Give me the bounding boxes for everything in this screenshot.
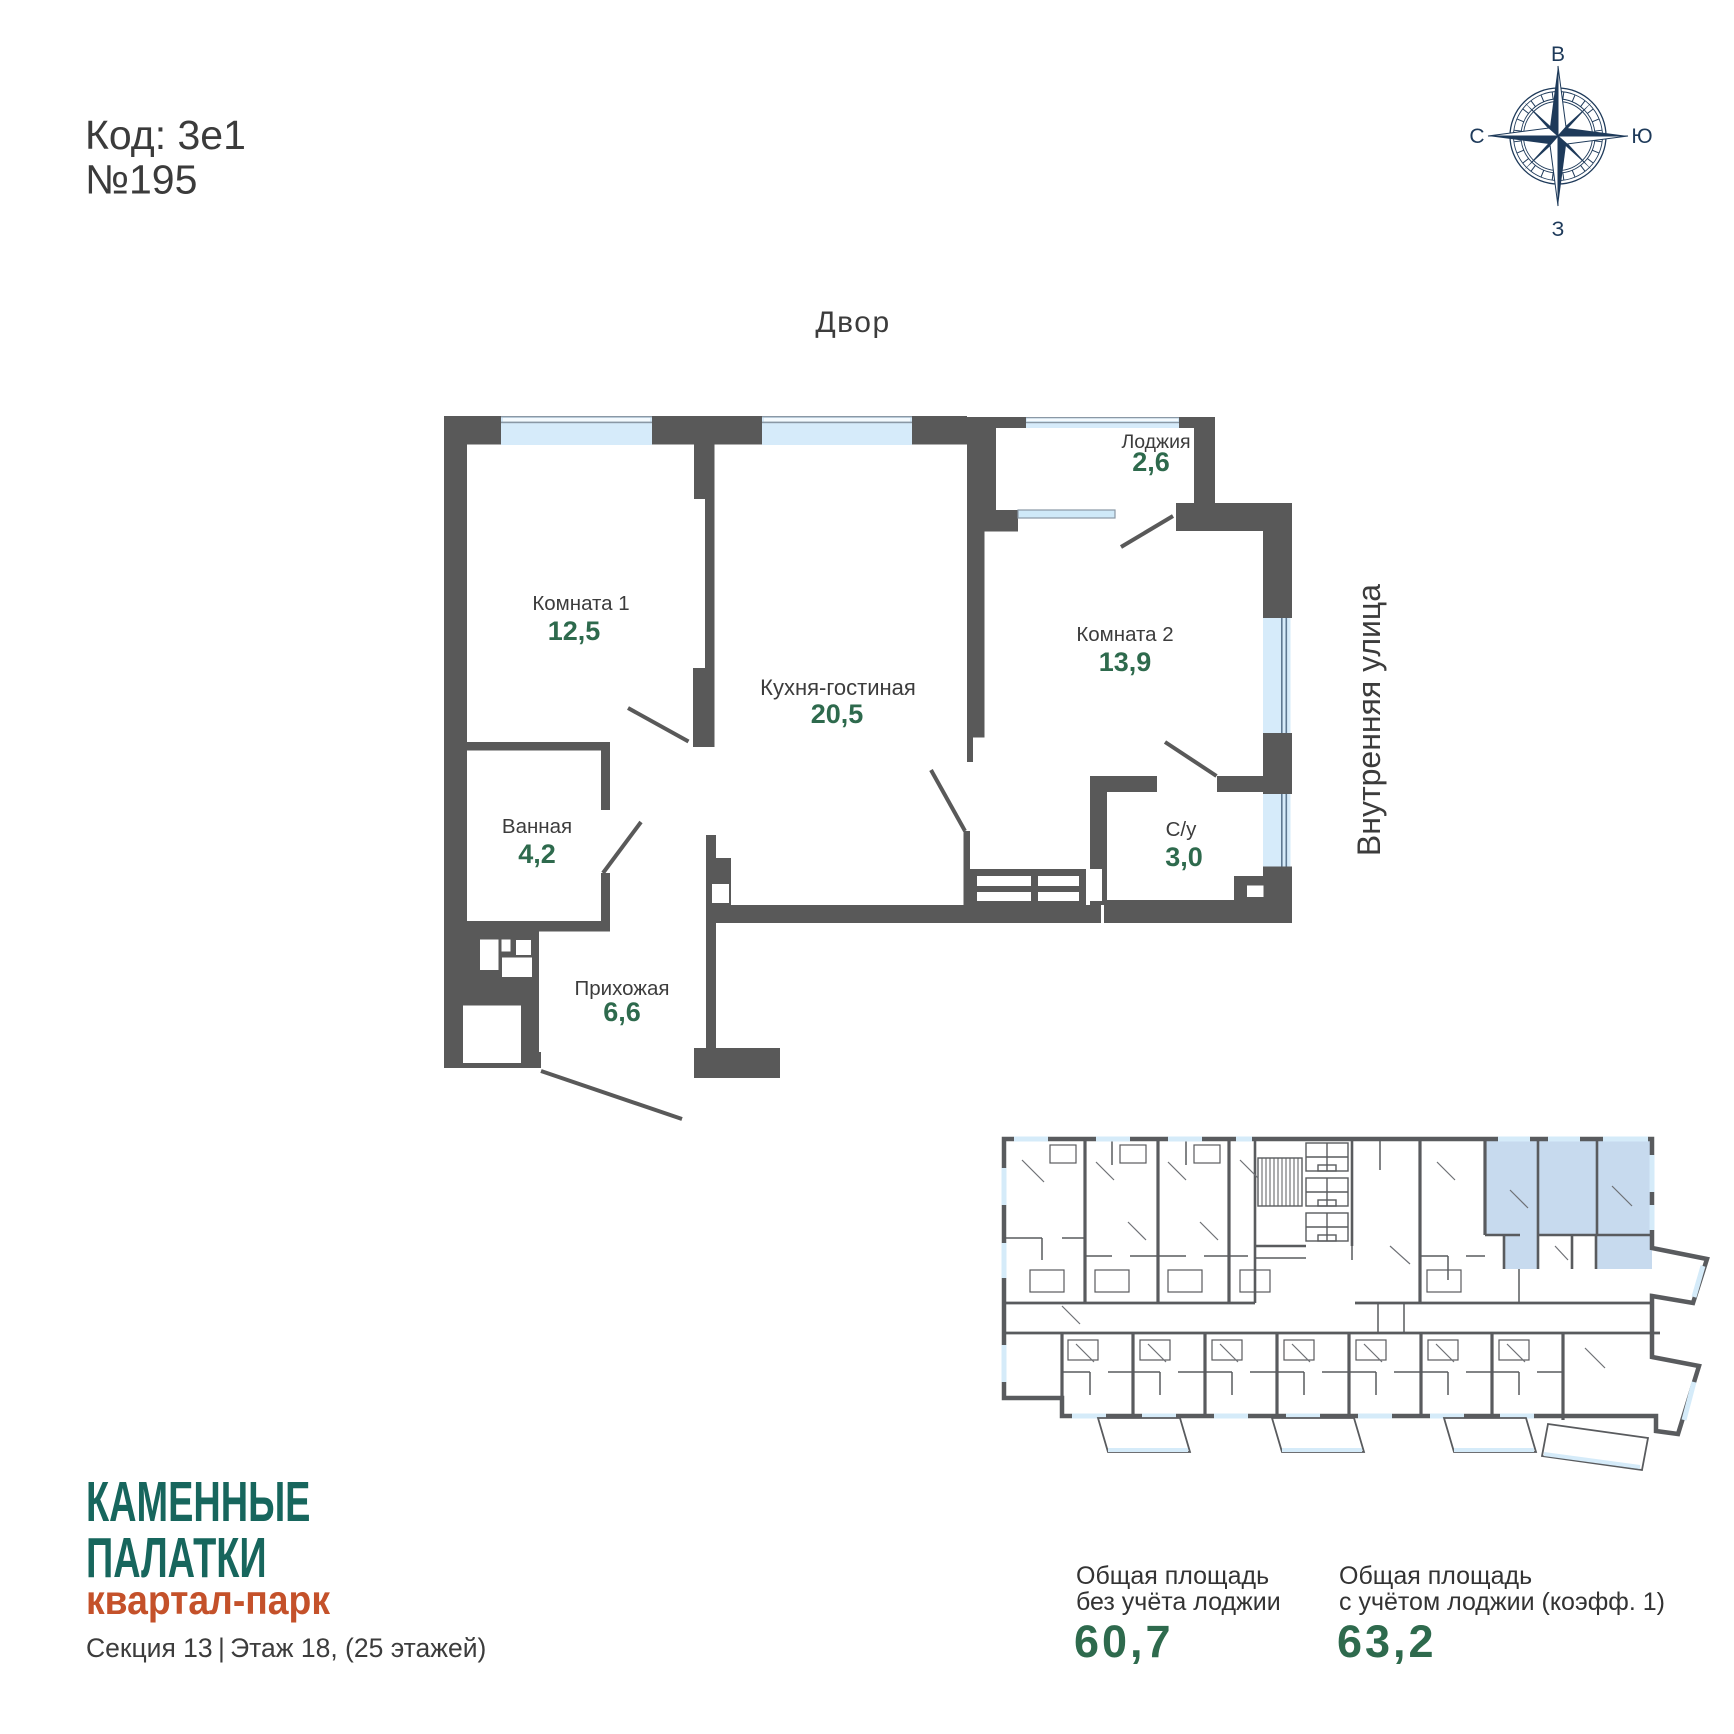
svg-text:квартал-парк: квартал-парк — [86, 1578, 330, 1623]
svg-text:Общая площадь: Общая площадь — [1076, 1562, 1269, 1590]
svg-text:без учёта лоджии: без учёта лоджии — [1076, 1588, 1281, 1616]
svg-text:Код: 3е1: Код: 3е1 — [85, 112, 246, 158]
svg-text:13,9: 13,9 — [1099, 647, 1152, 677]
svg-text:63,2: 63,2 — [1337, 1616, 1437, 1667]
svg-text:20,5: 20,5 — [811, 699, 864, 729]
svg-text:Общая площадь: Общая площадь — [1339, 1562, 1532, 1590]
svg-text:КАМЕННЫЕ: КАМЕННЫЕ — [86, 1470, 310, 1534]
svg-text:С: С — [1469, 125, 1484, 148]
svg-text:Комната 1: Комната 1 — [532, 592, 629, 615]
svg-text:№195: №195 — [85, 157, 197, 203]
svg-text:З: З — [1552, 218, 1565, 241]
svg-text:Кухня-гостиная: Кухня-гостиная — [760, 675, 916, 700]
svg-text:Внутренняя улица: Внутренняя улица — [1351, 584, 1387, 856]
svg-text:Ю: Ю — [1631, 125, 1652, 148]
svg-text:Двор: Двор — [815, 306, 890, 339]
svg-text:12,5: 12,5 — [548, 616, 601, 646]
svg-text:4,2: 4,2 — [518, 839, 556, 869]
svg-text:С/у: С/у — [1166, 818, 1198, 841]
svg-text:Секция 13 | Этаж 18, (25 этаже: Секция 13 | Этаж 18, (25 этажей) — [86, 1633, 486, 1663]
svg-text:Комната 2: Комната 2 — [1076, 623, 1173, 646]
svg-text:60,7: 60,7 — [1074, 1616, 1174, 1667]
svg-text:Ванная: Ванная — [502, 815, 572, 838]
svg-text:3,0: 3,0 — [1165, 842, 1203, 872]
svg-text:6,6: 6,6 — [603, 997, 641, 1027]
svg-text:В: В — [1551, 43, 1565, 66]
svg-text:с учётом лоджии (коэфф. 1): с учётом лоджии (коэфф. 1) — [1339, 1588, 1665, 1616]
svg-text:2,6: 2,6 — [1132, 447, 1170, 477]
